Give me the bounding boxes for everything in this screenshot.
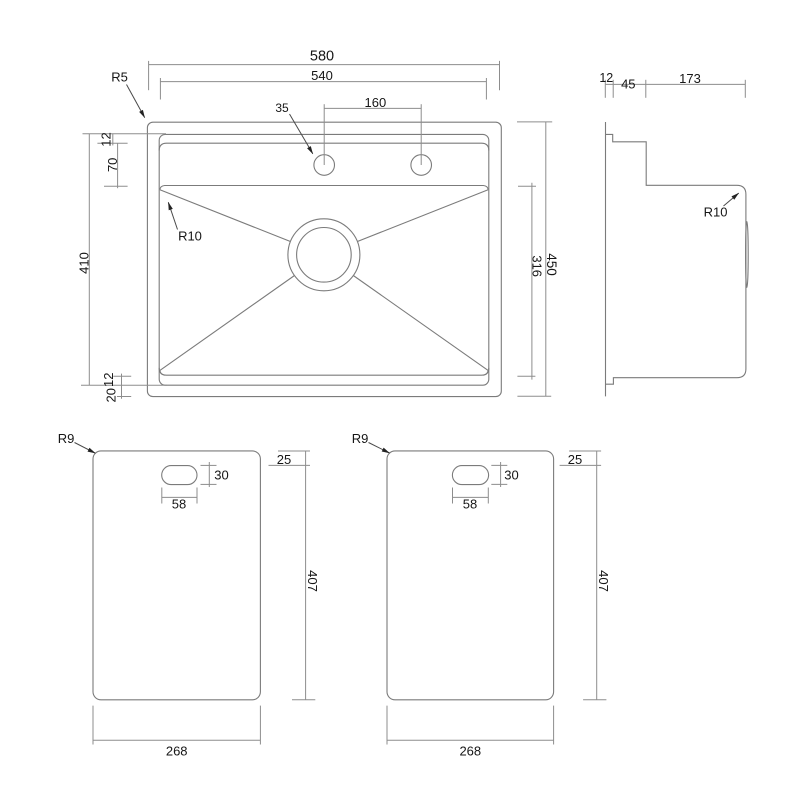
svg-text:12: 12	[599, 71, 613, 85]
svg-text:407: 407	[305, 570, 320, 592]
svg-text:268: 268	[166, 744, 188, 759]
svg-text:R9: R9	[352, 431, 369, 446]
svg-text:450: 450	[544, 253, 559, 276]
svg-text:45: 45	[621, 77, 635, 92]
svg-text:35: 35	[275, 101, 289, 115]
svg-text:25: 25	[568, 452, 582, 467]
svg-text:R5: R5	[111, 69, 128, 84]
svg-text:540: 540	[311, 68, 333, 83]
svg-text:R10: R10	[178, 228, 202, 243]
svg-text:268: 268	[459, 744, 481, 759]
svg-text:20: 20	[103, 388, 118, 402]
svg-text:580: 580	[310, 49, 334, 65]
svg-text:316: 316	[530, 255, 545, 277]
svg-text:407: 407	[596, 570, 611, 592]
svg-text:12: 12	[101, 373, 116, 387]
svg-text:30: 30	[504, 467, 518, 482]
svg-text:25: 25	[277, 452, 291, 467]
svg-text:173: 173	[679, 71, 701, 86]
svg-text:12: 12	[99, 132, 114, 146]
svg-text:R10: R10	[704, 204, 728, 219]
svg-text:58: 58	[172, 497, 186, 512]
svg-text:58: 58	[463, 497, 477, 512]
svg-text:410: 410	[77, 252, 92, 274]
svg-text:160: 160	[365, 95, 387, 110]
svg-text:30: 30	[214, 467, 228, 482]
svg-text:R9: R9	[58, 431, 75, 446]
svg-text:70: 70	[105, 158, 120, 172]
